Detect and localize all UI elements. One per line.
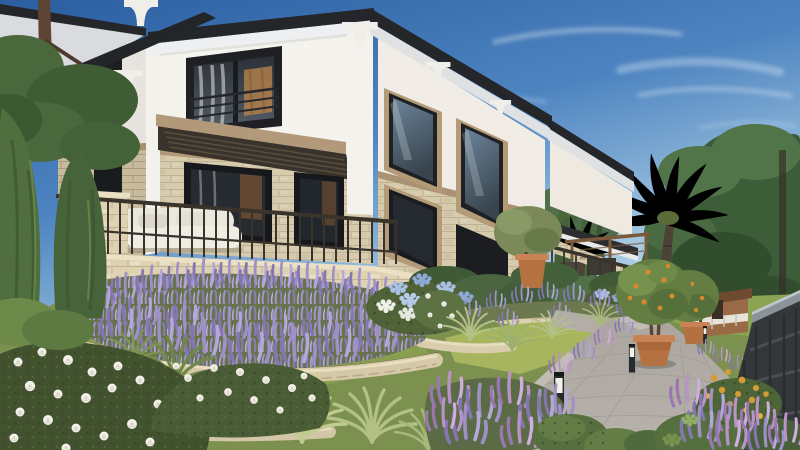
villa-render xyxy=(0,0,800,450)
bollard-light xyxy=(629,344,635,373)
rose-patch-mid xyxy=(414,290,466,330)
scene-canvas xyxy=(0,0,800,450)
corner-pillar-front xyxy=(347,25,373,215)
